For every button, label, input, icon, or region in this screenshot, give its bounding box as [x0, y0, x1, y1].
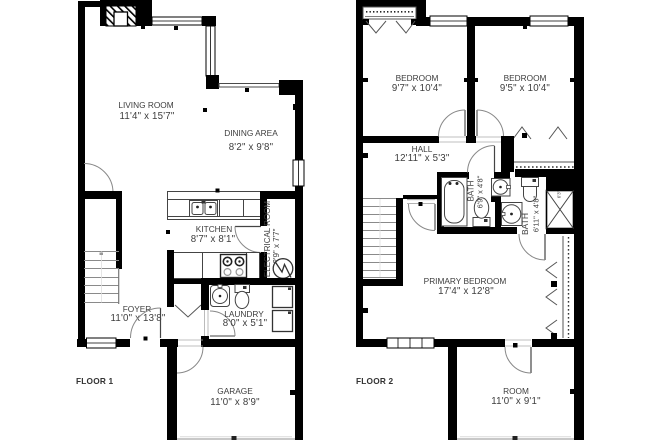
svg-text:8'2" x 9'8": 8'2" x 9'8": [229, 142, 274, 153]
svg-text:8'0" x 5'1": 8'0" x 5'1": [223, 318, 268, 329]
svg-text:BEDROOM: BEDROOM: [396, 73, 439, 83]
svg-text:8'7" x 8'1": 8'7" x 8'1": [191, 234, 236, 245]
svg-text:DINING AREA: DINING AREA: [224, 128, 278, 138]
svg-text:KITCHEN: KITCHEN: [196, 224, 232, 234]
svg-text:6'11" x 4'8": 6'11" x 4'8": [532, 195, 541, 232]
svg-text:9'5" x 10'4": 9'5" x 10'4": [500, 83, 551, 94]
svg-text:BATH: BATH: [520, 213, 530, 235]
svg-text:11'0" x 8'9": 11'0" x 8'9": [210, 397, 260, 408]
svg-text:2'9" x 7'7": 2'9" x 7'7": [272, 228, 281, 263]
svg-text:BATH: BATH: [467, 180, 476, 201]
svg-text:11'0" x 9'1": 11'0" x 9'1": [491, 396, 541, 407]
svg-text:17'4" x 12'8": 17'4" x 12'8": [438, 286, 494, 297]
svg-text:11'4" x 15'7": 11'4" x 15'7": [119, 111, 174, 122]
svg-text:FLOOR 1: FLOOR 1: [76, 376, 114, 386]
svg-text:FLOOR 2: FLOOR 2: [356, 376, 394, 386]
svg-text:LIVING ROOM: LIVING ROOM: [118, 100, 173, 110]
svg-text:6'9" x 4'8": 6'9" x 4'8": [476, 175, 485, 208]
svg-text:ELECTRICAL ROOM: ELECTRICAL ROOM: [263, 201, 272, 277]
svg-text:6'3": 6'3": [557, 190, 562, 198]
svg-text:12'11" x 5'3": 12'11" x 5'3": [394, 153, 449, 164]
svg-text:ROOM: ROOM: [503, 386, 529, 396]
svg-text:9'7" x 10'4": 9'7" x 10'4": [392, 83, 443, 94]
svg-text:GARAGE: GARAGE: [217, 386, 253, 396]
svg-text:BEDROOM: BEDROOM: [504, 73, 547, 83]
svg-text:PRIMARY BEDROOM: PRIMARY BEDROOM: [424, 276, 507, 286]
